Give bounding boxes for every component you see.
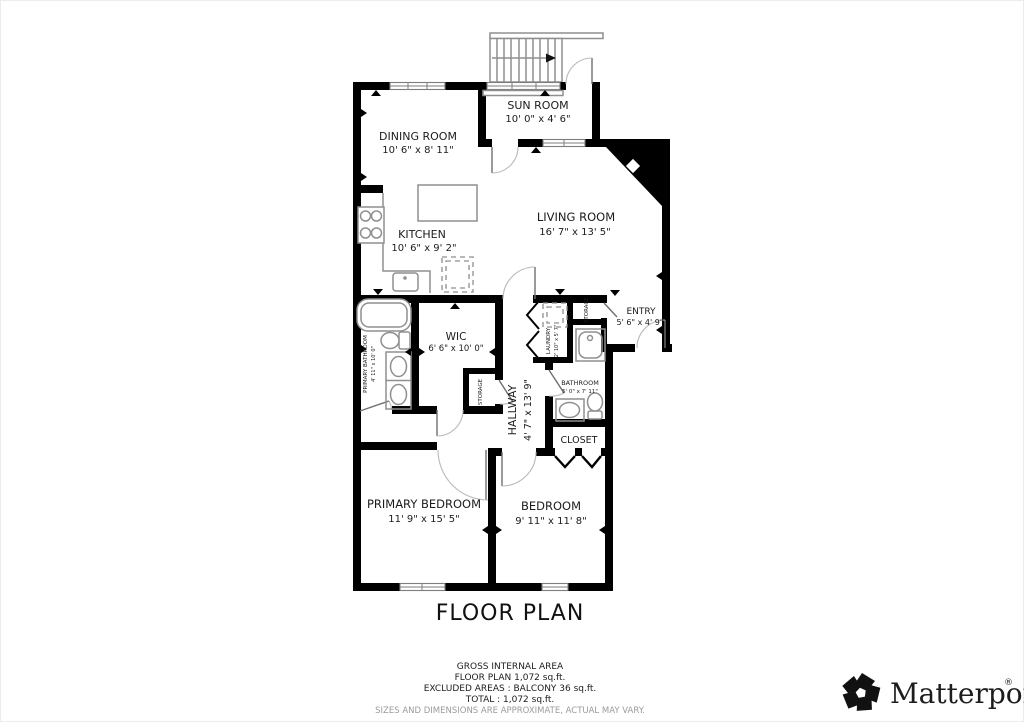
- room-label-living-room: LIVING ROOM: [537, 210, 615, 224]
- double-vanity-icon: [386, 352, 411, 409]
- bedroom-door: [502, 452, 536, 486]
- refrigerator-icon: [442, 257, 473, 292]
- room-label-bedroom: BEDROOM: [521, 499, 581, 513]
- bathtub-icon: [357, 299, 411, 331]
- room-dims-dining-room: 10' 6" x 8' 11": [382, 145, 454, 156]
- hallway-door: [503, 267, 535, 299]
- room-dims-bedroom: 9' 11" x 11' 8": [515, 516, 587, 527]
- room-label-wic: WIC: [446, 331, 467, 343]
- window: [487, 83, 560, 90]
- page-title: FLOOR PLAN: [436, 601, 585, 626]
- room-label-bathroom: BATHROOM: [561, 379, 599, 387]
- room-label-hallway: HALLWAY: [506, 384, 519, 435]
- total-area-line: TOTAL : 1,072 sq.ft.: [465, 695, 555, 705]
- matterport-logo-icon: [838, 673, 884, 717]
- primary-bedroom-door: [438, 450, 488, 500]
- room-label-sun-room: SUN ROOM: [507, 99, 568, 112]
- registered-trademark-symbol: ®: [1004, 678, 1013, 688]
- matterport-logo: Matterport ®: [838, 673, 1024, 717]
- window: [400, 584, 445, 591]
- closet-bifold-doors: [555, 456, 601, 467]
- area-summary: GROSS INTERNAL AREA FLOOR PLAN 1,072 sq.…: [375, 662, 645, 716]
- laundry-bifold-doors: [527, 301, 539, 359]
- bathroom-vanity-icon: [556, 399, 584, 421]
- gross-internal-area-line: GROSS INTERNAL AREA: [457, 662, 564, 672]
- room-label-storage-right: STORAGE: [584, 296, 590, 323]
- window: [542, 584, 568, 591]
- room-dims-living-room: 16' 7" x 13' 5": [539, 227, 611, 238]
- room-dims-primary-bathroom: 4' 11" x 10' 0": [371, 346, 377, 382]
- room-label-dining-room: DINING ROOM: [379, 130, 457, 143]
- room-label-primary-bathroom: PRIMARY BATHROOM: [363, 335, 369, 393]
- floor-plan-area-line: FLOOR PLAN 1,072 sq.ft.: [455, 673, 566, 683]
- shower-icon: [576, 329, 605, 361]
- excluded-areas-line: EXCLUDED AREAS : BALCONY 36 sq.ft.: [424, 684, 597, 694]
- room-dims-kitchen: 10' 6" x 9' 2": [391, 243, 456, 254]
- room-dims-hallway: 4' 7" x 13' 9": [523, 379, 534, 441]
- bathroom-toilet-icon: [588, 393, 603, 419]
- window: [390, 83, 445, 90]
- wic-door: [437, 410, 463, 436]
- corner-fireplace: [606, 139, 670, 206]
- stove-icon: [358, 207, 384, 243]
- sunroom-door: [492, 147, 518, 173]
- washer-dryer-icon: [543, 303, 567, 327]
- floor-plan-canvas: DINING ROOM 10' 6" x 8' 11" SUN ROOM 10'…: [0, 0, 1024, 722]
- window: [543, 140, 585, 147]
- room-label-closet: CLOSET: [561, 435, 598, 446]
- room-label-storage-left: STORAGE: [478, 378, 484, 405]
- room-dims-bathroom: 5' 0" x 7' 11": [562, 389, 598, 395]
- disclaimer: SIZES AND DIMENSIONS ARE APPROXIMATE, AC…: [375, 706, 645, 716]
- kitchen-sink-icon: [393, 273, 418, 291]
- room-label-entry: ENTRY: [626, 307, 656, 317]
- room-label-primary-bedroom: PRIMARY BEDROOM: [367, 497, 481, 511]
- room-dims-sun-room: 10' 0" x 4' 6": [505, 114, 570, 125]
- room-dims-laundry: 2' 10" x 5' 7": [554, 325, 560, 358]
- kitchen-island: [418, 185, 477, 221]
- room-dims-wic: 6' 6" x 10' 0": [428, 344, 483, 354]
- primary-toilet-icon: [381, 332, 410, 349]
- room-label-laundry: LAUNDRY: [546, 327, 552, 354]
- room-dims-entry: 5' 6" x 4' 9": [616, 318, 663, 327]
- stairs: [490, 33, 603, 82]
- floor-plan-page: DINING ROOM 10' 6" x 8' 11" SUN ROOM 10'…: [0, 0, 1024, 722]
- room-label-kitchen: KITCHEN: [398, 228, 446, 241]
- sunroom-threshold: [483, 91, 563, 96]
- storage-right-door: [604, 303, 617, 317]
- balcony-door: [566, 58, 592, 84]
- room-dims-primary-bedroom: 11' 9" x 15' 5": [388, 514, 460, 525]
